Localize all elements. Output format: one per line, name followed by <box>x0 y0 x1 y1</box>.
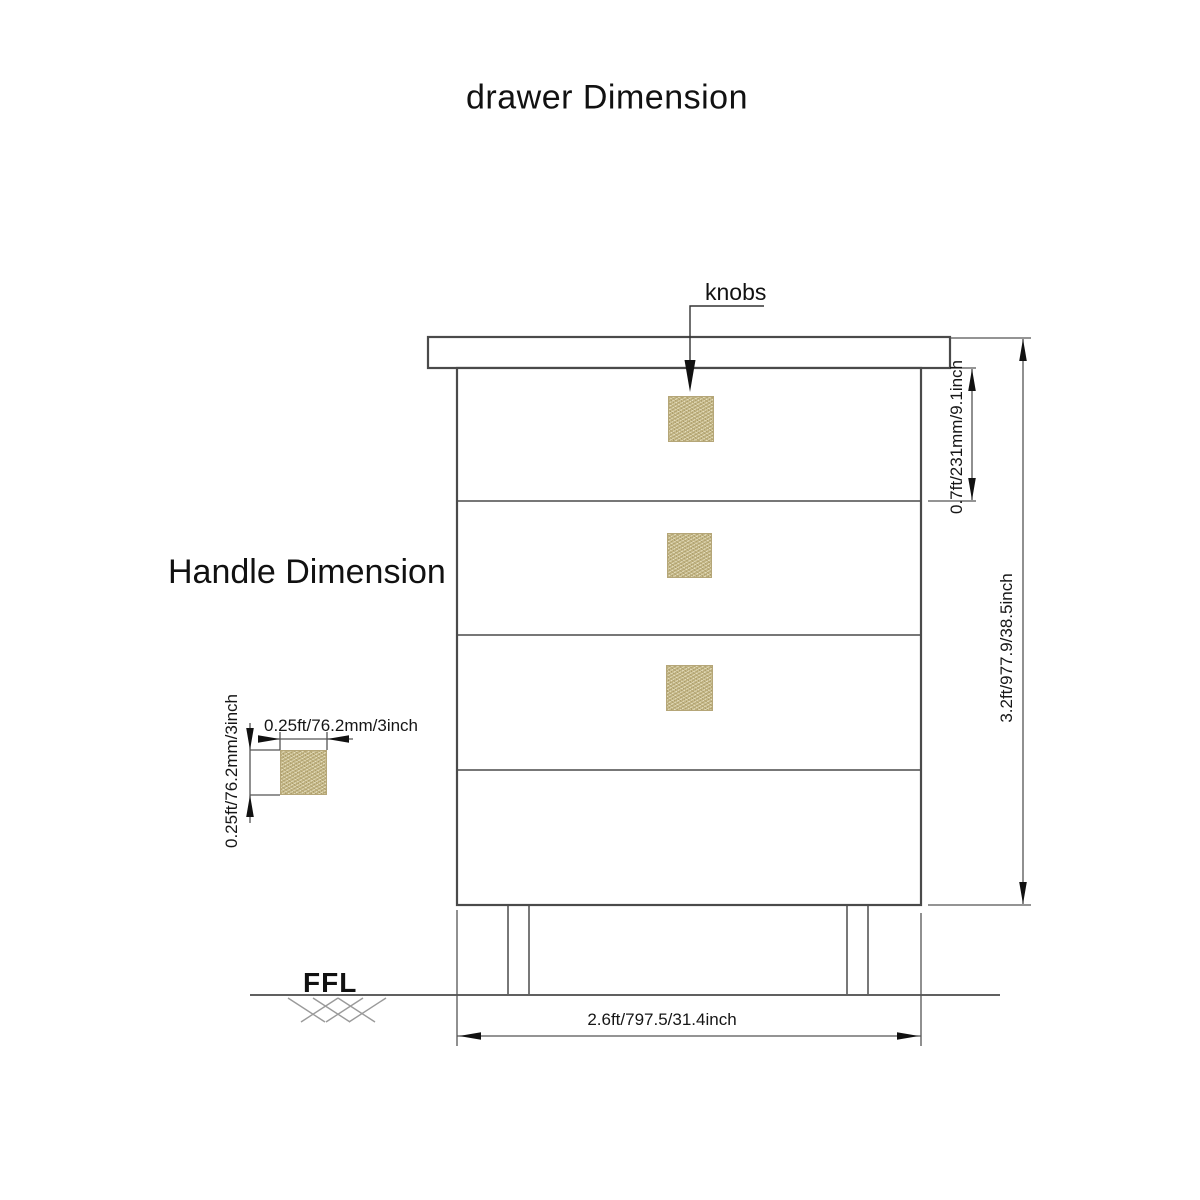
knobs-label: knobs <box>705 279 766 306</box>
page-title: drawer Dimension <box>466 79 748 118</box>
handle-width-arrow-left <box>258 735 280 743</box>
overall-width-dim-arrow-left <box>459 1032 481 1040</box>
drawer-knob-1 <box>668 396 714 442</box>
handle-height-dimension-label: 0.25ft/76.2mm/3inch <box>222 694 242 848</box>
handle-detail-knob <box>280 750 327 795</box>
top-drawer-dim-arrow-down <box>968 478 976 500</box>
handle-width-arrow-right <box>327 735 349 743</box>
handle-width-dimension-label: 0.25ft/76.2mm/3inch <box>264 716 418 736</box>
ffl-label: FFL <box>303 967 357 999</box>
overall-width-dimension-label: 2.6ft/797.5/31.4inch <box>587 1010 736 1030</box>
overall-height-dim-arrow-down <box>1019 882 1027 904</box>
cabinet-body <box>457 368 921 905</box>
drawing-sheet: drawer Dimension knobs Handle Dimension … <box>0 0 1200 1200</box>
overall-height-dimension-label: 3.2ft/977.9/38.5inch <box>997 573 1017 722</box>
overall-height-dim-arrow-up <box>1019 339 1027 361</box>
handle-height-arrow-top <box>246 728 254 750</box>
ground-hatch <box>288 998 386 1022</box>
top-drawer-dim-arrow-up <box>968 369 976 391</box>
top-drawer-height-dimension-label: 0.7ft/231mm/9.1inch <box>947 360 967 514</box>
drawer-knob-3 <box>666 665 713 711</box>
handle-height-arrow-bottom <box>246 795 254 817</box>
overall-width-dim-arrow-right <box>897 1032 919 1040</box>
handle-section-title: Handle Dimension <box>168 553 446 592</box>
drawer-knob-2 <box>667 533 712 578</box>
